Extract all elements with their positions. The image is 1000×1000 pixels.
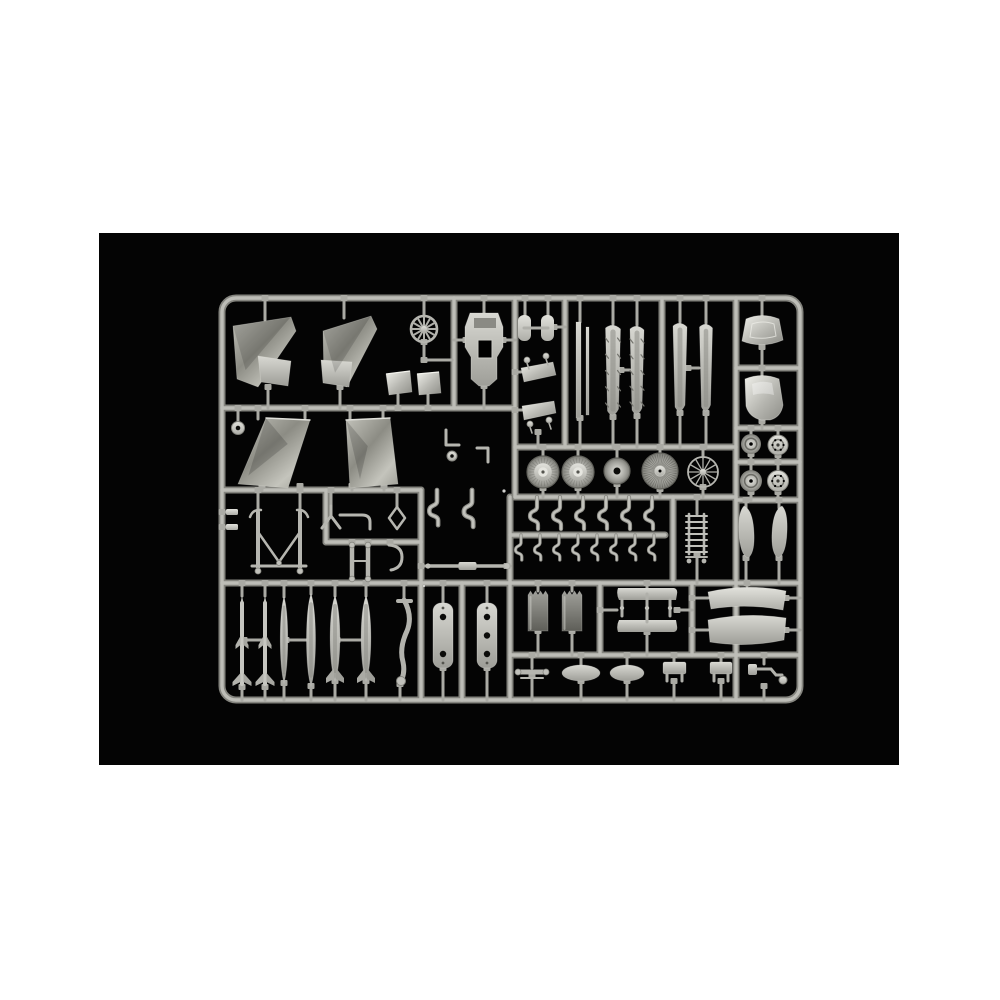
nozzle-petal-3	[673, 323, 687, 411]
wheel-hubcap-2	[768, 471, 789, 492]
antenna-strip-a	[576, 322, 581, 418]
photo-page	[0, 0, 1000, 1000]
engine-fan-2	[562, 456, 594, 488]
exhaust-panel-2	[562, 591, 582, 631]
sprue-product-photo	[0, 0, 1000, 1000]
shiny-panel-right	[417, 372, 441, 395]
engine-fan-1	[527, 456, 559, 488]
drop-tank-2	[307, 594, 316, 686]
wheel-hub-small	[232, 422, 245, 435]
engine-disc-flat	[604, 458, 630, 484]
exhaust-panel-1	[528, 591, 548, 631]
intake-lip-upper	[708, 587, 786, 610]
spoked-wheel-top	[411, 316, 437, 342]
wing-right	[346, 418, 398, 488]
clip-a	[226, 509, 238, 515]
nozzle-petal-1	[606, 325, 621, 415]
antenna-strip-b	[586, 327, 589, 415]
gear-door-2	[477, 603, 497, 668]
wheel-tire-2	[740, 470, 762, 492]
wheel-tire-1	[741, 434, 761, 454]
wheel-hubcap-1	[768, 435, 788, 455]
gear-door-1	[433, 603, 453, 668]
shiny-panel-left	[386, 371, 412, 395]
spoked-rim	[688, 457, 718, 487]
clip-b	[226, 524, 238, 530]
intake-lip-lower	[708, 615, 786, 644]
nozzle-petal-4	[700, 324, 713, 411]
drop-tank-1	[280, 597, 288, 683]
nozzle-petal-2	[630, 326, 644, 414]
windscreen	[742, 316, 783, 345]
sensor-pod-1	[562, 665, 600, 681]
engine-turbine	[642, 453, 678, 489]
pivot-hub	[447, 451, 457, 461]
sensor-pod-2	[610, 665, 644, 681]
canopy	[745, 376, 783, 421]
cockpit-tub	[465, 313, 503, 386]
